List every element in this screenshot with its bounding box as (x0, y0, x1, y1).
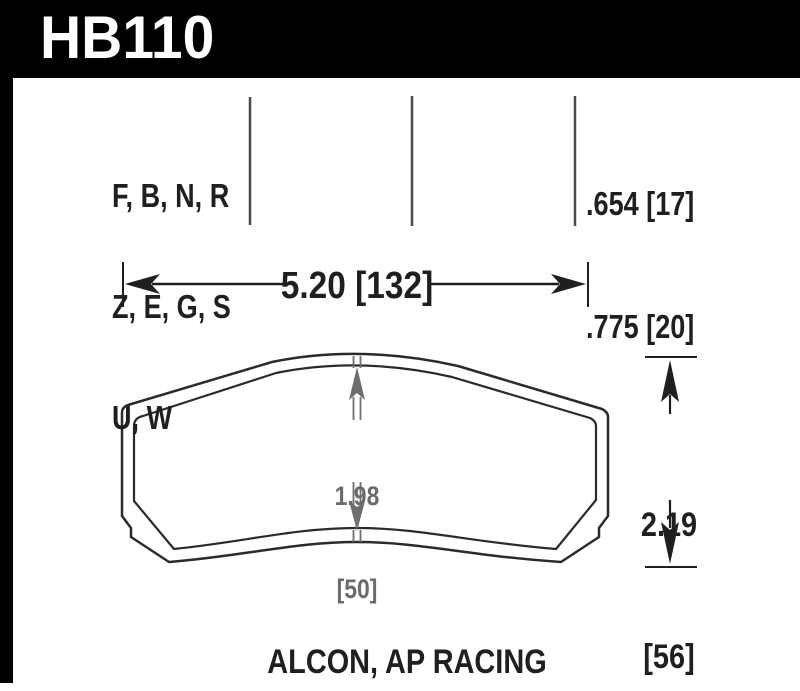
compound-codes-line-3: U, W (112, 399, 231, 436)
caliper-applications: ALCON, AP RACING (237, 644, 577, 680)
overall-width-label: 5.20 [132] (181, 266, 533, 306)
overall-height-mm: [56] (584, 635, 754, 679)
pad-thickness-line-2: .775 [20] (586, 306, 694, 347)
compound-codes: F, B, N, R Z, E, G, S U, W (112, 103, 231, 510)
overall-height-label: 2.19 [56] (584, 415, 754, 691)
pad-thickness-values: .654 [17] .775 [20] (586, 101, 694, 429)
pad-thickness-line-1: .654 [17] (586, 183, 694, 224)
center-height-mm: [50] (272, 574, 442, 605)
overall-height-inches: 2.19 (584, 503, 754, 547)
brake-pad-spec-sheet: HB110 (0, 0, 800, 691)
center-height-label: 1.98 [50] (272, 419, 442, 667)
compound-codes-line-1: F, B, N, R (112, 177, 231, 214)
column-dividers (250, 96, 575, 226)
center-height-inches: 1.98 (272, 481, 442, 512)
center-dim-up-arrowhead (349, 367, 365, 400)
